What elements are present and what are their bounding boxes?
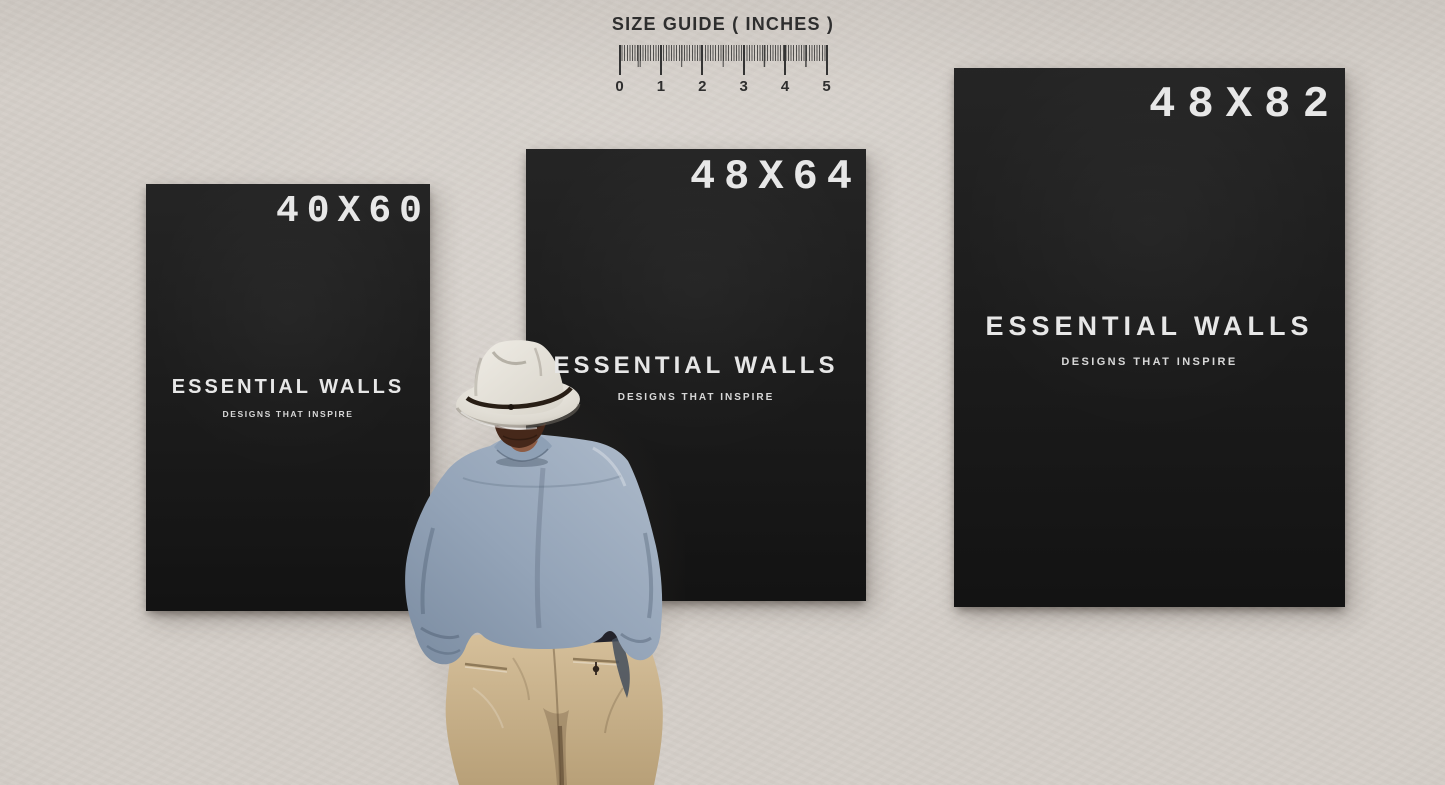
brand-name: ESSENTIAL WALLS: [146, 376, 430, 399]
size-guide-ruler: 0 1 2 3 4 5: [619, 45, 828, 95]
size-guide-title: SIZE GUIDE ( INCHES ): [600, 14, 846, 35]
ruler-number: 1: [657, 78, 665, 95]
poster-size-label: 48X64: [690, 156, 861, 198]
poster-40x60: 40X60 ESSENTIAL WALLS DESIGNS THAT INSPI…: [146, 184, 430, 611]
ruler-tick: [826, 45, 828, 75]
ruler-tick: [743, 45, 745, 75]
ruler-number: 3: [740, 78, 748, 95]
ruler-number: 2: [698, 78, 706, 95]
ruler-tick: [784, 45, 786, 75]
poster-48x82: 48X82 ESSENTIAL WALLS DESIGNS THAT INSPI…: [954, 68, 1345, 607]
poster-brand-block: ESSENTIAL WALLS DESIGNS THAT INSPIRE: [146, 376, 430, 419]
ruler-tick: [701, 45, 703, 75]
size-guide: SIZE GUIDE ( INCHES ) 0 1 2 3 4 5: [600, 14, 846, 95]
ruler-tick: [660, 45, 662, 75]
brand-tagline: DESIGNS THAT INSPIRE: [954, 356, 1345, 368]
ruler-number: 5: [822, 78, 830, 95]
wall-scene: SIZE GUIDE ( INCHES ) 0 1 2 3 4 5 40X60 …: [0, 0, 1445, 785]
poster-size-label: 40X60: [276, 193, 430, 231]
brand-name: ESSENTIAL WALLS: [954, 311, 1345, 342]
ruler-number: 0: [615, 78, 623, 95]
ruler-half-ticks: [619, 45, 828, 67]
ruler-number: 4: [781, 78, 789, 95]
poster-size-label: 48X82: [1149, 83, 1341, 127]
brand-name: ESSENTIAL WALLS: [526, 352, 866, 380]
ruler-tick: [619, 45, 621, 75]
poster-brand-block: ESSENTIAL WALLS DESIGNS THAT INSPIRE: [526, 352, 866, 403]
brand-tagline: DESIGNS THAT INSPIRE: [146, 409, 430, 419]
poster-brand-block: ESSENTIAL WALLS DESIGNS THAT INSPIRE: [954, 311, 1345, 368]
brand-tagline: DESIGNS THAT INSPIRE: [526, 392, 866, 403]
